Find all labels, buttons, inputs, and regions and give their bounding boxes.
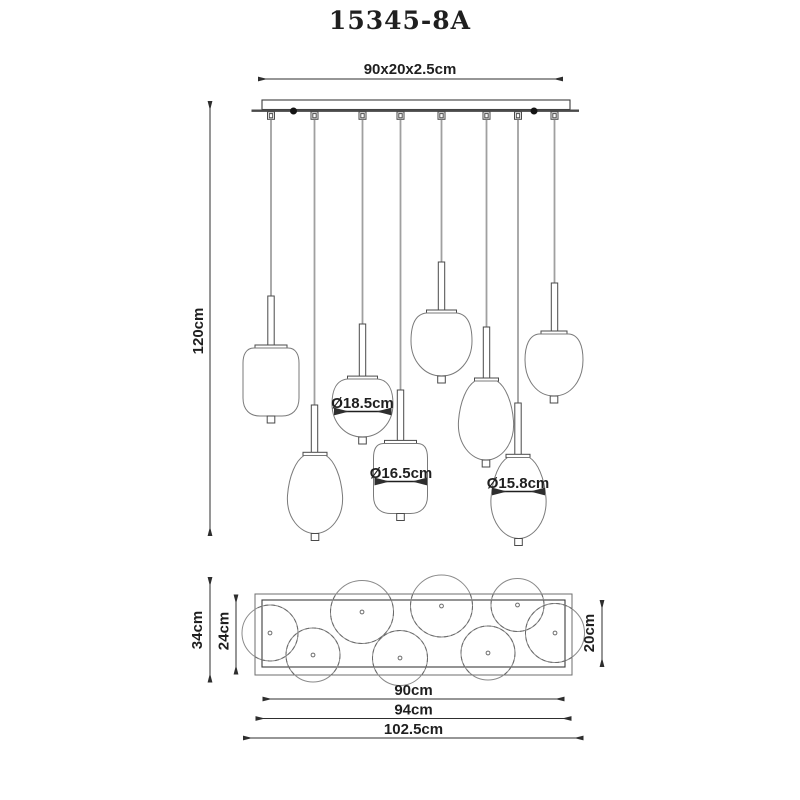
dim-shade-large: Ø18.5cm	[331, 395, 394, 412]
top-view: 34cm 24cm 20cm 90cm 94cm 102.5cm	[189, 575, 602, 738]
dim-frame-width: 94cm	[256, 702, 572, 719]
dim-drop-height: 120cm	[190, 101, 210, 536]
bottom-finial	[515, 539, 523, 546]
screw-left	[290, 108, 297, 115]
pendant-1	[243, 120, 299, 424]
glass-shade	[491, 458, 546, 539]
screw-right	[531, 108, 538, 115]
plate-body	[262, 100, 570, 110]
dia-small-label: Ø15.8cm	[487, 475, 550, 492]
shade-circles-outside	[242, 575, 585, 686]
rod	[483, 327, 489, 379]
rod	[438, 262, 444, 311]
rod	[397, 390, 403, 441]
cord-grip	[438, 112, 445, 120]
dim-plate-width: 90cm	[263, 682, 565, 699]
rod	[515, 403, 521, 455]
frame-width-label: 94cm	[394, 702, 432, 719]
bottom-finial	[311, 534, 319, 541]
pendant-3: Ø18.5cm	[331, 120, 394, 445]
glass-shade	[243, 348, 299, 416]
dia-large-label: Ø18.5cm	[331, 395, 394, 412]
bottom-finial	[267, 416, 275, 423]
glass-shade	[458, 381, 513, 460]
technical-drawing: 15345-8A 90x20x2.5cm	[0, 0, 800, 800]
pendant-6	[458, 120, 513, 468]
cord-grip	[483, 112, 490, 120]
front-view: 90x20x2.5cm 120cm	[190, 61, 583, 546]
cord-grips	[268, 112, 559, 120]
overall-depth-label: 34cm	[189, 611, 206, 649]
bottom-finial	[482, 460, 490, 467]
bottom-finial	[550, 396, 558, 403]
plate-edge	[252, 110, 580, 112]
dim-shade-medium: Ø16.5cm	[370, 465, 433, 482]
dim-shade-small: Ø15.8cm	[487, 475, 550, 492]
drop-height-label: 120cm	[190, 308, 207, 355]
plate-width-label: 90cm	[394, 682, 432, 699]
dia-medium-label: Ø16.5cm	[370, 465, 433, 482]
pendant-2	[287, 120, 342, 541]
cord-grip	[551, 112, 558, 120]
glass-shade	[287, 456, 342, 534]
glass-shade	[525, 334, 583, 396]
ceiling-plate	[252, 100, 580, 119]
rod	[268, 296, 274, 346]
plate-size-label: 90x20x2.5cm	[364, 61, 457, 78]
dim-overall-width: 102.5cm	[243, 721, 584, 738]
overall-width-label: 102.5cm	[384, 721, 443, 738]
pendant-5	[411, 120, 472, 384]
bottom-finial	[397, 514, 405, 521]
pendant-8	[525, 120, 583, 404]
rod	[359, 324, 365, 377]
rod	[311, 405, 317, 453]
dim-overall-depth: 34cm	[189, 577, 210, 683]
frame-depth-label: 24cm	[216, 612, 233, 650]
rod	[551, 283, 557, 332]
shade-circles-hidden	[242, 575, 585, 686]
cord-grip	[397, 112, 404, 120]
pendant-7: Ø15.8cm	[487, 120, 550, 546]
dim-frame-depth: 24cm	[216, 595, 237, 675]
glass-shade	[411, 313, 472, 376]
plate-depth-label: 20cm	[581, 614, 598, 652]
page-title: 15345-8A	[329, 6, 471, 35]
bottom-finial	[359, 437, 367, 444]
cord-grip	[515, 112, 522, 120]
dim-plate-size: 90x20x2.5cm	[258, 61, 563, 79]
cord-grip	[268, 112, 275, 120]
dim-plate-depth: 20cm	[581, 600, 602, 667]
cord-grip	[359, 112, 366, 120]
cord-grip	[311, 112, 318, 120]
bottom-finial	[438, 376, 446, 383]
